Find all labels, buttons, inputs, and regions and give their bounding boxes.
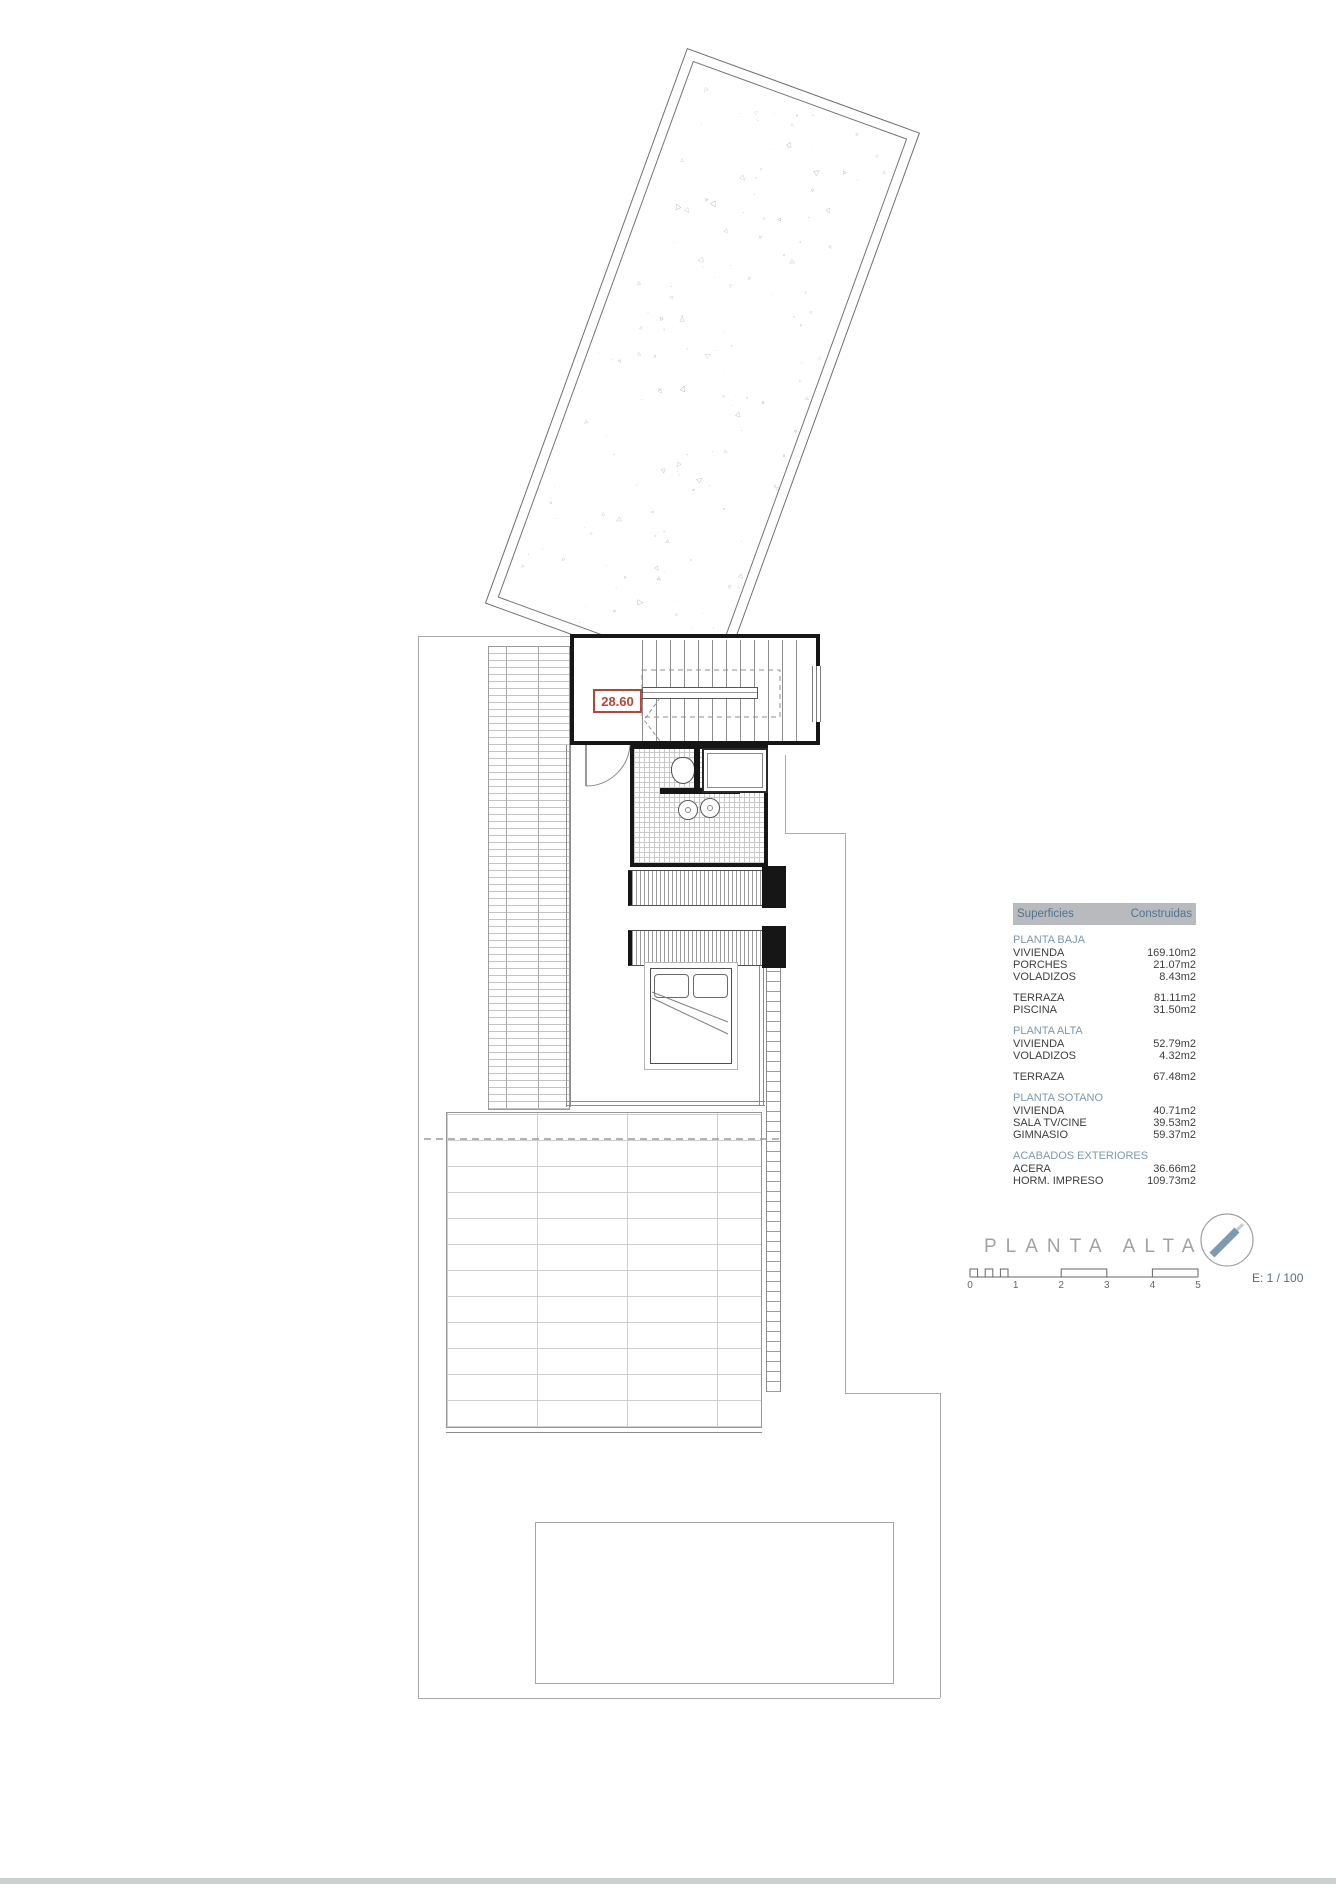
scale-number: 5 xyxy=(1195,1280,1201,1291)
terrain-mark: · xyxy=(729,261,731,268)
decking-joint-2 xyxy=(538,646,539,1108)
wardrobe-strip xyxy=(628,930,767,966)
terrain-mark: · xyxy=(597,349,600,356)
site-line-right-upper xyxy=(785,755,786,833)
table-row-label: VIVIENDA xyxy=(1013,1038,1064,1050)
areas-table-col1: Superficies xyxy=(1017,908,1074,920)
pillow xyxy=(693,974,728,998)
terrain-mark: · xyxy=(608,358,615,361)
tiled-terrace xyxy=(446,1112,762,1428)
bedroom-wall-left-b xyxy=(570,745,571,1107)
site-line-right-mid xyxy=(845,833,846,1393)
floor-plan-sheet: ▵∘·▵△·∘··△△∘····∘△∘∘▵△▵△▵△△···▵▵△∘▵··▵▵·… xyxy=(0,0,1336,1896)
table-row-value: 36.66m2 xyxy=(1153,1163,1196,1175)
terrain-mark: △ xyxy=(636,600,644,606)
bedroom-wall-right-b xyxy=(763,966,764,1105)
table-row-value: 40.71m2 xyxy=(1153,1105,1196,1117)
site-line-step-upper xyxy=(785,833,845,834)
table-section: PLANTA SOTANOVIVIENDA40.71m2SALA TV/CINE… xyxy=(1013,1092,1196,1141)
table-row-value: 39.53m2 xyxy=(1153,1117,1196,1129)
washbasin xyxy=(700,798,720,818)
terrain-mark: ▵ xyxy=(841,170,849,174)
terrain-mark: ▵ xyxy=(747,275,750,281)
table-row-label: VIVIENDA xyxy=(1013,947,1064,959)
wall-block xyxy=(762,926,786,968)
table-row-value: 31.50m2 xyxy=(1153,1004,1196,1016)
terrain-mark: △ xyxy=(636,352,640,357)
terrain-mark: ∘ xyxy=(790,315,796,319)
scale-number: 3 xyxy=(1104,1280,1110,1291)
scale-bar xyxy=(970,1269,1198,1277)
terrain-mark: ∘ xyxy=(651,354,659,359)
table-row: TERRAZA81.11m2 xyxy=(1013,992,1196,1004)
shower-tray xyxy=(707,753,763,788)
table-section: TERRAZA81.11m2PISCINA31.50m2 xyxy=(1013,992,1196,1016)
table-row: GIMNASIO59.37m2 xyxy=(1013,1129,1196,1141)
table-row-value: 67.48m2 xyxy=(1153,1071,1196,1083)
pergola-louver-strip xyxy=(766,968,781,1392)
table-row: VIVIENDA40.71m2 xyxy=(1013,1105,1196,1117)
washbasin xyxy=(678,800,698,820)
table-row-label: TERRAZA xyxy=(1013,992,1064,1004)
table-row-label: VIVIENDA xyxy=(1013,1105,1064,1117)
terrain-mark: · xyxy=(673,238,675,243)
terrain-mark: · xyxy=(639,395,643,403)
table-section: TERRAZA67.48m2 xyxy=(1013,1071,1196,1083)
table-row-value: 4.32m2 xyxy=(1159,1050,1196,1062)
stair-window-line xyxy=(820,666,821,722)
terrain-mark: · xyxy=(668,285,675,288)
table-section-header: PLANTA BAJA xyxy=(1013,934,1196,947)
stair-door xyxy=(586,745,630,786)
plan-title: PLANTA ALTA xyxy=(984,1236,1203,1258)
table-row: PORCHES21.07m2 xyxy=(1013,959,1196,971)
terrain-mark: · xyxy=(738,112,744,114)
terrain-mark: ∘ xyxy=(691,486,695,493)
bedroom-wall-bottom-a xyxy=(566,1101,765,1102)
table-row: VOLADIZOS8.43m2 xyxy=(1013,971,1196,983)
bedroom-wall-bottom-b xyxy=(566,1105,765,1106)
table-row-label: GIMNASIO xyxy=(1013,1129,1068,1141)
site-line-top xyxy=(418,636,570,637)
scale-number: 0 xyxy=(967,1280,973,1291)
terrain-mark: ▵ xyxy=(810,114,815,117)
terrain-mark: · xyxy=(753,190,756,197)
stair-window-line xyxy=(816,666,817,722)
terrain-mark: ▵ xyxy=(601,510,605,517)
terrain-mark: ∘ xyxy=(660,327,666,331)
table-row: HORM. IMPRESO109.73m2 xyxy=(1013,1175,1196,1187)
bedroom-wall-right-a xyxy=(759,966,760,1105)
table-row-label: PORCHES xyxy=(1013,959,1067,971)
site-line-right-lower xyxy=(940,1393,941,1698)
terrain-mark: · xyxy=(613,451,616,459)
tiled-terrace-outer-edge xyxy=(446,1432,762,1433)
table-row: VIVIENDA169.10m2 xyxy=(1013,947,1196,959)
toilet-fixture xyxy=(671,757,695,784)
scale-number: 4 xyxy=(1150,1280,1156,1291)
table-row-label: PISCINA xyxy=(1013,1004,1057,1016)
level-elevation-label: 28.60 xyxy=(593,689,642,713)
table-section-header: ACABADOS EXTERIORES xyxy=(1013,1150,1196,1163)
areas-table-header: Superficies Construidas xyxy=(1013,903,1196,925)
stair-handrail xyxy=(642,687,758,699)
site-line-left xyxy=(418,636,419,1698)
table-row-label: HORM. IMPRESO xyxy=(1013,1175,1103,1187)
table-row-value: 169.10m2 xyxy=(1147,947,1196,959)
table-row: PISCINA31.50m2 xyxy=(1013,1004,1196,1016)
shower-enclosure xyxy=(702,748,768,793)
table-row-label: TERRAZA xyxy=(1013,1071,1064,1083)
site-line-step xyxy=(845,1393,940,1394)
site-plot-boundary: ▵∘·▵△·∘··△△∘····∘△∘∘▵△▵△▵△△···▵▵△∘▵··▵▵·… xyxy=(485,48,920,688)
wall-block xyxy=(762,866,786,908)
table-row-label: SALA TV/CINE xyxy=(1013,1117,1087,1129)
scale-ratio-label: E: 1 / 100 xyxy=(1252,1271,1303,1285)
terrain-mark: · xyxy=(770,148,775,150)
areas-table-col2: Construidas xyxy=(1131,908,1192,920)
north-arrow-icon xyxy=(1201,1214,1253,1266)
table-row-label: VOLADIZOS xyxy=(1013,971,1076,983)
scale-bar-numbers: 012345 xyxy=(968,1280,1208,1294)
terrain-mark: · xyxy=(733,395,738,397)
table-row-label: VOLADIZOS xyxy=(1013,1050,1076,1062)
table-row-value: 59.37m2 xyxy=(1153,1129,1196,1141)
site-line-bottom xyxy=(418,1698,940,1699)
page-edge-strip xyxy=(0,1878,1336,1884)
terrain-mark: △ xyxy=(661,467,667,474)
table-section: PLANTA BAJAVIVIENDA169.10m2PORCHES21.07m… xyxy=(1013,934,1196,983)
level-elevation-value: 28.60 xyxy=(601,694,634,709)
table-row: VIVIENDA52.79m2 xyxy=(1013,1038,1196,1050)
site-plot-inner-boundary xyxy=(498,61,908,676)
wood-decking-terrace xyxy=(488,646,570,1110)
table-row-value: 21.07m2 xyxy=(1153,959,1196,971)
table-row-value: 8.43m2 xyxy=(1159,971,1196,983)
table-row-value: 52.79m2 xyxy=(1153,1038,1196,1050)
table-row: TERRAZA67.48m2 xyxy=(1013,1071,1196,1083)
pillow xyxy=(654,974,689,998)
scale-number: 1 xyxy=(1013,1280,1019,1291)
decking-joint-1 xyxy=(506,646,507,1108)
table-row: VOLADIZOS4.32m2 xyxy=(1013,1050,1196,1062)
areas-table-body: PLANTA BAJAVIVIENDA169.10m2PORCHES21.07m… xyxy=(1013,934,1196,1187)
terrain-mark: · xyxy=(714,276,716,282)
table-row-value: 109.73m2 xyxy=(1147,1175,1196,1187)
terrain-mark: ▵ xyxy=(560,557,566,561)
table-row: SALA TV/CINE39.53m2 xyxy=(1013,1117,1196,1129)
table-section: ACABADOS EXTERIORESACERA36.66m2HORM. IMP… xyxy=(1013,1150,1196,1187)
pool-outline xyxy=(535,1522,894,1684)
stair-window-line xyxy=(812,666,813,722)
table-row-value: 81.11m2 xyxy=(1154,992,1196,1004)
areas-table: Superficies Construidas PLANTA BAJAVIVIE… xyxy=(1013,903,1196,1187)
terrain-mark: ∘ xyxy=(753,178,756,183)
terrain-mark: △ xyxy=(696,256,704,263)
table-row: ACERA36.66m2 xyxy=(1013,1163,1196,1175)
table-section: PLANTA ALTAVIVIENDA52.79m2VOLADIZOS4.32m… xyxy=(1013,1025,1196,1062)
table-section-header: PLANTA SOTANO xyxy=(1013,1092,1196,1105)
wardrobe-strip xyxy=(628,870,767,906)
bedroom-wall-left-a xyxy=(566,745,567,1107)
terrain-mark: △ xyxy=(722,449,727,454)
scale-number: 2 xyxy=(1058,1280,1064,1291)
table-section-header: PLANTA ALTA xyxy=(1013,1025,1196,1038)
terrain-mark: △ xyxy=(680,317,685,324)
table-row-label: ACERA xyxy=(1013,1163,1051,1175)
bathroom-partition-vertical xyxy=(694,745,700,792)
terrain-mark: · xyxy=(683,453,691,456)
